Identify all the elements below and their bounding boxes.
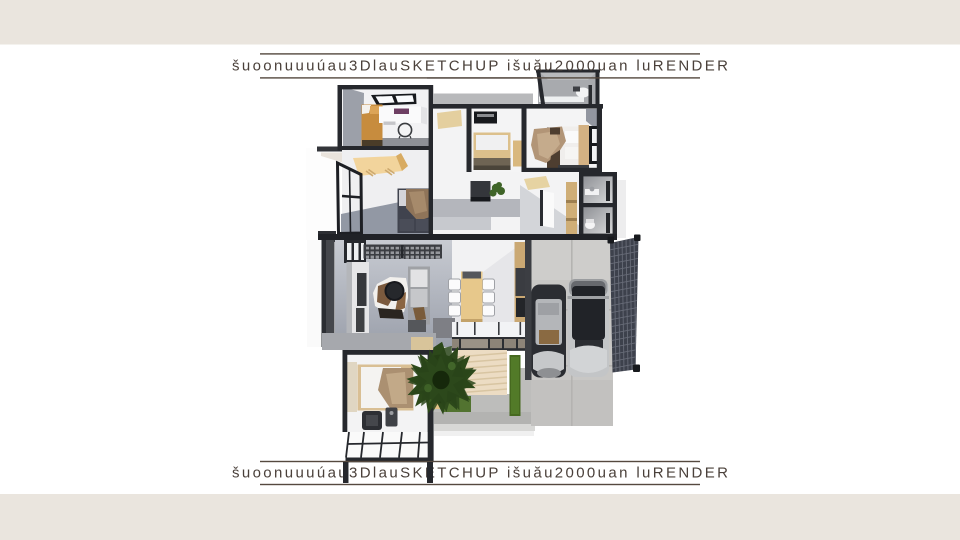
svg-text:šuoonuuuúau3DlauSKETCHUP išuău: šuoonuuuúau3DlauSKETCHUP išuău2000uan lu…: [232, 58, 728, 75]
svg-text:šuoonuuuúau3DlauSKETCHUP išuău: šuoonuuuúau3DlauSKETCHUP išuău2000uan lu…: [232, 465, 728, 482]
